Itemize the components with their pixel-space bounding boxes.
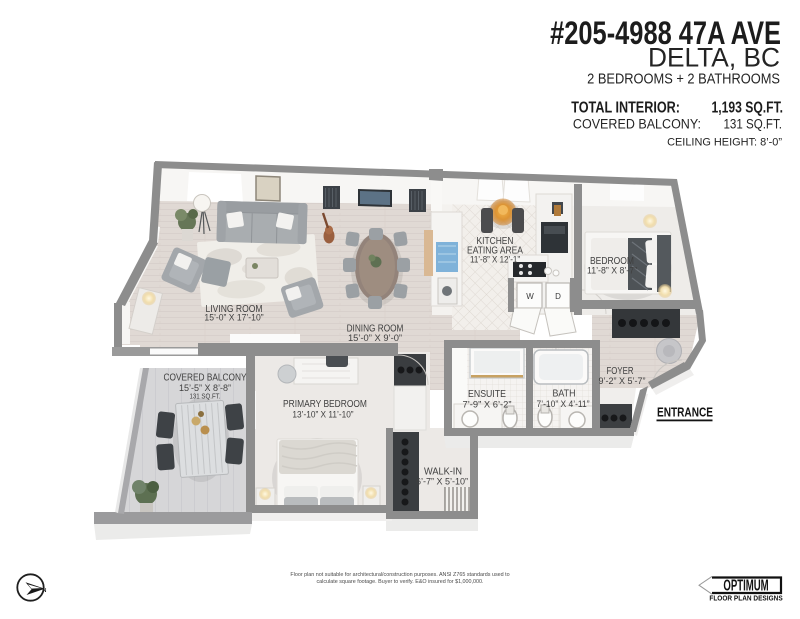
- svg-text:6’-7” X 5’-10”: 6’-7” X 5’-10”: [416, 476, 468, 486]
- svg-text:calculate square footage. Buye: calculate square footage. Buyer to verif…: [316, 579, 483, 585]
- svg-text:9’-2” X 5’-7”: 9’-2” X 5’-7”: [598, 376, 645, 386]
- svg-text:N: N: [43, 588, 47, 594]
- svg-text:7’-9” X 6’-2”: 7’-9” X 6’-2”: [463, 399, 512, 410]
- svg-text:D: D: [555, 292, 561, 301]
- svg-text:PRIMARY BEDROOM: PRIMARY BEDROOM: [283, 398, 367, 409]
- svg-text:13’-10” X 11’-10”: 13’-10” X 11’-10”: [292, 409, 353, 420]
- svg-text:TOTAL INTERIOR:: TOTAL INTERIOR:: [571, 98, 680, 116]
- svg-text:11’-8” X 12’-1”: 11’-8” X 12’-1”: [470, 254, 520, 265]
- svg-text:15’-0” X 9’-0”: 15’-0” X 9’-0”: [348, 333, 402, 343]
- svg-text:FLOOR PLAN DESIGNS: FLOOR PLAN DESIGNS: [709, 595, 783, 602]
- svg-text:OPTIMUM: OPTIMUM: [723, 576, 768, 594]
- svg-text:COVERED BALCONY:: COVERED BALCONY:: [573, 116, 701, 131]
- svg-text:131 SQ.FT.: 131 SQ.FT.: [189, 393, 220, 400]
- svg-text:11’-8” X 8’-7”: 11’-8” X 8’-7”: [587, 265, 637, 275]
- svg-text:BATH: BATH: [553, 388, 576, 398]
- svg-text:2 BEDROOMS + 2 BATHROOMS: 2 BEDROOMS + 2 BATHROOMS: [587, 70, 780, 87]
- svg-text:15’-5” X 8’-8”: 15’-5” X 8’-8”: [179, 383, 231, 393]
- svg-text:ENTRANCE: ENTRANCE: [657, 405, 713, 420]
- svg-text:7’-10” X 4’-11”: 7’-10” X 4’-11”: [536, 399, 589, 409]
- svg-text:1,193 SQ.FT.: 1,193 SQ.FT.: [712, 98, 783, 116]
- svg-text:COVERED BALCONY: COVERED BALCONY: [163, 372, 246, 383]
- svg-text:W: W: [526, 292, 534, 301]
- svg-text:Floor plan not suitable for ar: Floor plan not suitable for architectura…: [290, 572, 509, 578]
- svg-text:15’-0” X 17’-10”: 15’-0” X 17’-10”: [204, 312, 263, 322]
- svg-text:CEILING HEIGHT: 8’-0”: CEILING HEIGHT: 8’-0”: [667, 136, 782, 148]
- svg-text:DELTA, BC: DELTA, BC: [648, 42, 780, 72]
- svg-text:131 SQ.FT.: 131 SQ.FT.: [723, 117, 782, 132]
- svg-text:FOYER: FOYER: [607, 365, 634, 376]
